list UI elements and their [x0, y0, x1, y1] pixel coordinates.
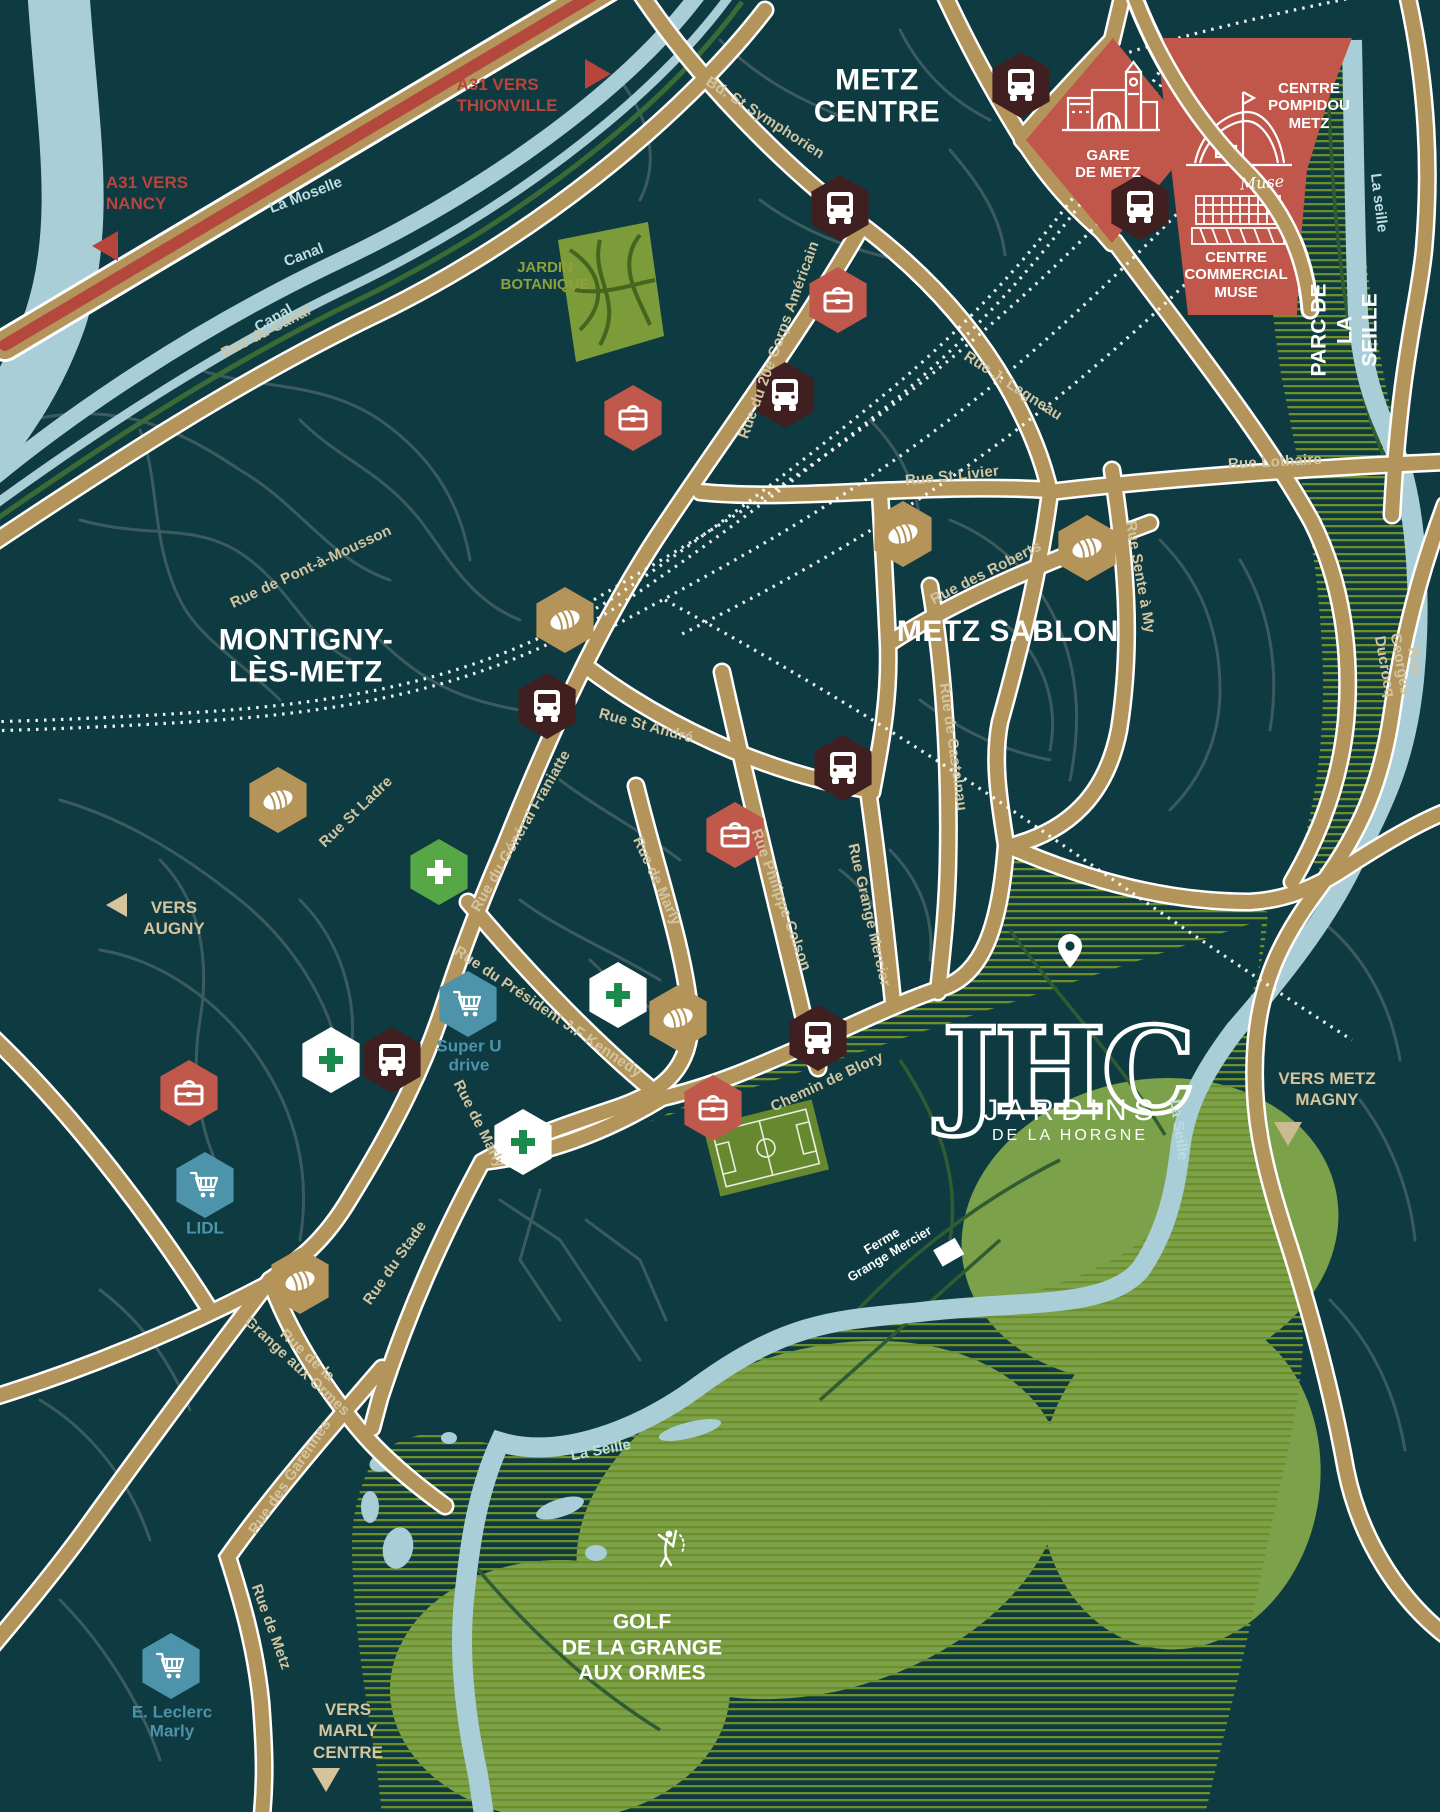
- rue-st-ladre-label: Rue St Ladre: [317, 774, 396, 851]
- thionville-arrow-icon: [585, 59, 611, 89]
- rue-du-general-franiatte-label: Rue du Général Franiatte: [469, 748, 574, 914]
- a31-vers-nancy-label: A31 VERS NANCY: [106, 172, 188, 215]
- rue-de-marly-upper-label: Rue de Marly: [630, 834, 684, 927]
- rue-du-stade-label: Rue du Stade: [361, 1218, 430, 1307]
- la-moselle-label: La Moselle: [267, 174, 345, 217]
- rue-st-andre-label: Rue St André: [597, 706, 695, 746]
- metz-sablon-label: METZ SABLON: [897, 616, 1119, 648]
- rue-de-metz-label: Rue de Metz: [248, 1582, 293, 1672]
- nancy-arrow-icon: [92, 231, 118, 261]
- rue-philippe-colson-label: Rue Philippe Colson: [748, 827, 814, 973]
- label-layer: GARE DE METZ CENTRE POMPIDOU METZ Muse C…: [0, 0, 1440, 1812]
- centre-pompidou-label: CENTRE POMPIDOU METZ: [1268, 80, 1350, 132]
- magny-arrow-icon: [1274, 1122, 1302, 1146]
- canal-1-label: Canal: [282, 241, 326, 271]
- canal-2-label: Canal: [252, 302, 296, 337]
- chemin-de-blory-label: Chemin de Blory: [768, 1049, 885, 1115]
- metz-location-map: JHC GARE DE METZ CENTRE POMPIDOU METZ Mu…: [0, 0, 1440, 1812]
- ferme-grange-mercier-label: Ferme Grange Mercier: [837, 1211, 934, 1286]
- rue-20e-corps-americain-label: Rue du 20e Corps Américain: [736, 239, 822, 441]
- rue-des-garennes-label: Rue des Garennes: [246, 1417, 334, 1537]
- rue-georges-ducrocq-label: Rue Georges Ducrocq: [1372, 629, 1428, 698]
- rue-de-castelnau-label: Rue de Castelnau: [936, 682, 969, 812]
- jardin-botanique-label: JARDIN BOTANIQUE: [501, 259, 590, 294]
- vers-metz-magny-label: VERS METZ MAGNY: [1278, 1068, 1375, 1111]
- a31-vers-thionville-label: A31 VERS THIONVILLE: [456, 74, 557, 117]
- rue-grange-aux-ormes-label: Rue de la Grange aux Ormes: [241, 1303, 362, 1419]
- rue-de-pont-a-mousson-label: Rue de Pont-à-Mousson: [228, 523, 394, 611]
- montigny-les-metz-label: MONTIGNY- LÈS-METZ: [219, 625, 394, 690]
- rue-st-livier-label: Rue St Livier: [904, 463, 999, 488]
- la-seille-s-label: La Seille: [570, 1437, 633, 1465]
- e-leclerc-marly-label: E. Leclerc Marly: [132, 1703, 212, 1740]
- muse-script-label: Muse: [1239, 173, 1285, 194]
- golf-grange-aux-ormes-label: GOLF DE LA GRANGE AUX ORMES: [562, 1610, 722, 1687]
- bd-st-symphorien-label: Bd. St Symphorien: [703, 74, 827, 162]
- vers-augny-label: VERS AUGNY: [143, 897, 204, 940]
- rue-lothaire-label: Rue Lothaire: [1228, 452, 1323, 472]
- rue-j-lagneau-label: Rue J. Lagneau: [961, 349, 1065, 424]
- lidl-label: LIDL: [186, 1220, 224, 1239]
- rue-grange-mercier-label: Rue Grange Mercier: [845, 842, 893, 988]
- parc-de-la-seille-label: PARC DE LA SEILLE: [1307, 283, 1384, 378]
- rue-des-roberts-label: Rue des Roberts: [928, 538, 1044, 607]
- rue-de-marly-lower-label: Rue de Marly: [450, 1078, 507, 1170]
- marly-arrow-icon: [312, 1768, 340, 1792]
- jardins-logo-title: JARDINS: [983, 1094, 1160, 1128]
- la-seille-mid-label: La Seille: [1165, 1099, 1190, 1162]
- gare-de-metz-label: GARE DE METZ: [1075, 147, 1141, 182]
- jardins-logo-subtitle: DE LA HORGNE: [992, 1127, 1148, 1145]
- rue-du-canal-label: Rue du Canal: [219, 303, 313, 361]
- vers-marly-centre-label: VERS MARLY CENTRE: [313, 1699, 383, 1763]
- metz-centre-label: METZ CENTRE: [814, 65, 940, 130]
- la-seille-ne-label: La seille: [1366, 173, 1390, 234]
- centre-commercial-muse-label: CENTRE COMMERCIAL MUSE: [1184, 249, 1287, 301]
- super-u-drive-label: Super U drive: [436, 1037, 501, 1074]
- rue-president-jf-kennedy-label: Rue du Président J.F Kennedy: [452, 944, 645, 1081]
- augny-arrow-icon: [106, 893, 127, 917]
- rue-sente-a-my-label: Rue Sente à My: [1123, 520, 1158, 635]
